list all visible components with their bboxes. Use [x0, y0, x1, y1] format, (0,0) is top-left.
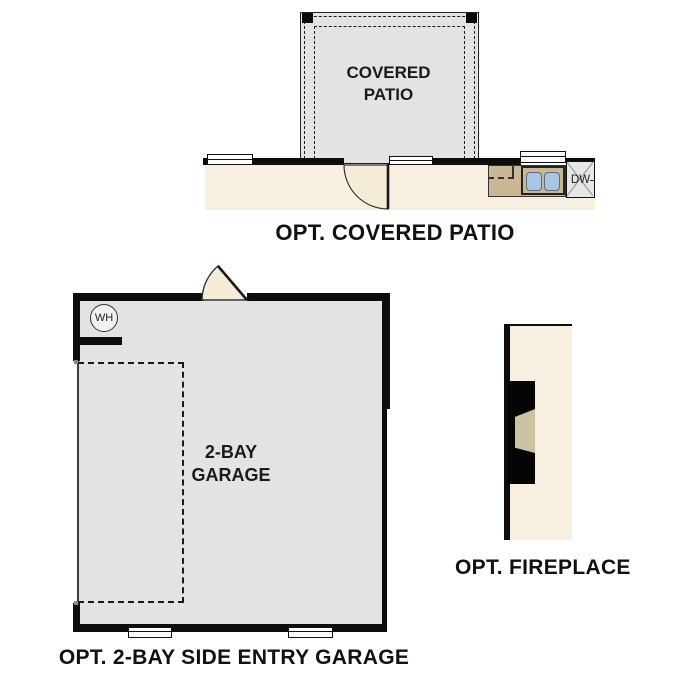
dashed-corner-tick: [74, 360, 78, 364]
exterior-wall-segment: [253, 158, 344, 165]
window-line: [208, 159, 252, 160]
fireplace-wall-top-line: [504, 324, 572, 326]
dishwasher: DW: [566, 161, 595, 198]
patio-post-right: [466, 13, 477, 23]
garage-wall-bottom: [73, 624, 387, 632]
water-heater-closet-wall: [80, 337, 122, 345]
patio-post-left: [302, 13, 313, 23]
water-heater: WH: [90, 304, 118, 332]
garage-wall-top-right: [247, 293, 390, 301]
garage-room-label: 2-BAY GARAGE: [185, 441, 277, 488]
vent-line: [289, 631, 332, 632]
water-heater-label: WH: [95, 312, 113, 324]
floorplan-options-sheet: COVERED PATIO DW OPT. COVERED PATIO: [0, 0, 687, 687]
window-line: [390, 160, 432, 161]
dashed-corner-tick: [74, 601, 78, 605]
kitchen-sink: [521, 166, 565, 195]
garage-vent: [128, 627, 172, 638]
counter-corner-dashed: [488, 177, 514, 179]
overhead-door-track-dashed: [78, 362, 184, 603]
sink-basin-left: [526, 172, 542, 191]
window-line: [521, 156, 565, 157]
counter-corner-dashed: [512, 166, 514, 178]
window-symbol: [207, 154, 253, 165]
vent-line: [129, 631, 171, 632]
dishwasher-dash: [590, 180, 594, 181]
window-symbol: [520, 151, 566, 163]
garage-wall-right-upper: [382, 293, 390, 409]
window-symbol: [389, 156, 433, 165]
garage-wall-top-left: [73, 293, 204, 301]
garage-vent: [288, 627, 333, 638]
garage-door-swing: [202, 266, 247, 300]
caption-garage: OPT. 2-BAY SIDE ENTRY GARAGE: [50, 646, 418, 670]
patio-room-label: COVERED PATIO: [325, 62, 452, 106]
garage-wall-left-upper: [73, 293, 80, 361]
exterior-wall-segment: [433, 158, 521, 165]
caption-covered-patio: OPT. COVERED PATIO: [195, 220, 595, 246]
garage-door-leaf: [218, 266, 247, 300]
sink-basin-right: [544, 172, 560, 191]
garage-wall-right-lower: [382, 409, 387, 632]
caption-fireplace: OPT. FIREPLACE: [455, 556, 627, 580]
